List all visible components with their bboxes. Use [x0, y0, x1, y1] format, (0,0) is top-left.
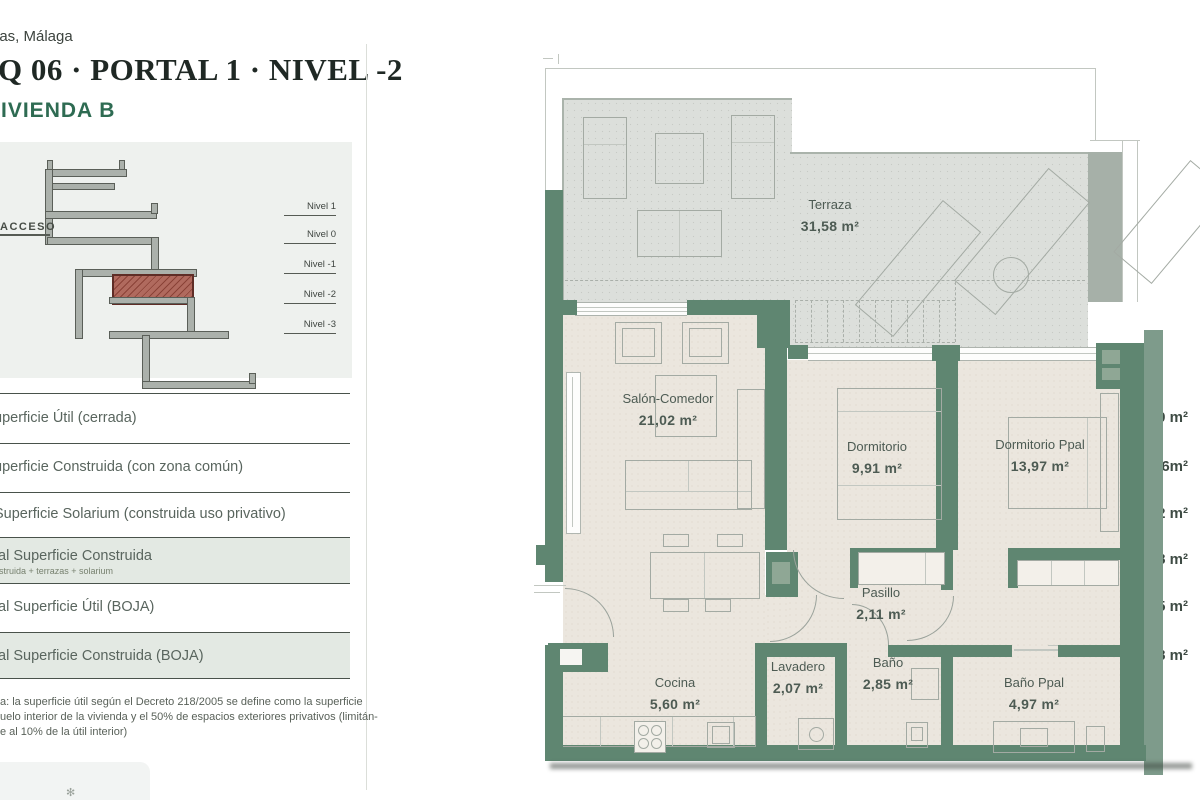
room-name: Lavadero: [771, 659, 825, 674]
note-line: a: la superficie útil según el Decreto 2…: [0, 696, 363, 708]
room-label-cocina: Cocina 5,60 m²: [630, 676, 720, 711]
table-row-label: tal Superficie Construida: [0, 548, 152, 564]
room-area: 5,60 m²: [630, 697, 720, 711]
section-bar: [250, 374, 255, 383]
room-area: 9,91 m²: [817, 461, 937, 475]
table-line: [0, 537, 350, 538]
table-line: [0, 583, 350, 584]
table-line: [0, 632, 350, 633]
curtain-track: [566, 372, 581, 534]
dining-chair: [717, 534, 743, 547]
access-line: [0, 234, 50, 236]
stairs-dashed: [939, 300, 940, 342]
stairs-dashed: [795, 300, 796, 342]
wall-endcap: [850, 548, 858, 588]
level-line: [284, 243, 336, 244]
room-name: Pasillo: [862, 585, 900, 600]
stairs-dashed: [907, 300, 908, 342]
neighbor-wall-band: [1144, 330, 1163, 775]
level-label: Nivel -1: [276, 259, 336, 270]
room-label-terraza: Terraza 31,58 m²: [770, 198, 890, 233]
bedroom-top-wall: [788, 345, 808, 359]
section-bar: [46, 212, 156, 218]
stairs-dashed: [795, 300, 955, 301]
dormppal-bottom-wall: [1008, 548, 1120, 560]
table-line: [0, 393, 350, 394]
room-label-pasillo: Pasillo 2,11 m²: [845, 586, 917, 621]
room-area: 2,85 m²: [848, 677, 928, 691]
bathppal-top-wall: [1058, 645, 1122, 657]
table-row-label: uperficie Construida (con zona común): [0, 459, 243, 475]
wall-inset: [1102, 368, 1122, 380]
dining-table: [650, 552, 760, 599]
closet-ppal: [1017, 560, 1119, 586]
location-text: jas, Málaga: [0, 28, 73, 45]
section-bar: [143, 336, 149, 386]
wall-shadow: [550, 763, 1192, 769]
sofa: [625, 460, 752, 510]
room-name: Dormitorio Ppal: [995, 437, 1085, 452]
toilet: [906, 722, 928, 748]
terrace-coffee-table: [637, 210, 722, 257]
bathppal-sink: [1020, 728, 1048, 747]
section-bar: [46, 170, 126, 176]
sliding-door-line: [1014, 649, 1058, 651]
stairs-dashed: [859, 300, 860, 342]
plan-tick: [558, 54, 559, 64]
terrace-table: [655, 133, 704, 184]
table-row-label: tal Superficie Construida (BOJA): [0, 648, 204, 664]
page-title: Q 06 · PORTAL 1 · NIVEL -2: [0, 52, 403, 88]
sliding-window: [575, 302, 687, 316]
table-line: [0, 443, 350, 444]
armchair: [615, 322, 662, 364]
kitchen-sink: [707, 722, 735, 748]
dining-chair: [663, 534, 689, 547]
room-label-lavadero: Lavadero 2,07 m²: [756, 660, 840, 695]
room-name: Cocina: [655, 675, 695, 690]
room-name: Dormitorio: [847, 439, 907, 454]
living-top-wall: [545, 300, 577, 315]
table-row-sublabel: nstruida + terrazas + solarium: [0, 566, 113, 576]
bath-divider-wall: [941, 657, 953, 745]
stairs-dashed: [955, 282, 956, 342]
plan-tick: [543, 58, 553, 59]
room-area: 2,11 m²: [845, 607, 917, 621]
room-area: 13,97 m²: [975, 459, 1105, 473]
room-label-bano-ppal: Baño Ppal 4,97 m²: [988, 676, 1080, 711]
room-label-salon: Salón-Comedor 21,02 m²: [598, 392, 738, 427]
plan-outline: [1090, 140, 1140, 141]
room-area: 21,02 m²: [598, 413, 738, 427]
entry-step: [534, 585, 566, 586]
table-line: [0, 678, 350, 679]
level-line: [284, 333, 336, 334]
sliding-door-tick: [1048, 645, 1058, 646]
terrace-side-wall: [1088, 152, 1122, 302]
room-label-bano: Baño 2,85 m²: [848, 656, 928, 691]
wall-inset: [1102, 350, 1122, 364]
compass-mark: ✻: [66, 786, 75, 799]
section-bar: [143, 382, 255, 388]
wall-pier: [536, 545, 546, 565]
exterior-wall-right: [1120, 345, 1144, 761]
level-line: [284, 303, 336, 304]
room-area: 2,07 m²: [756, 681, 840, 695]
unit-subtitle: VIVIENDA B: [0, 99, 115, 123]
terrace-side-table: [993, 257, 1029, 293]
section-bar: [152, 204, 157, 213]
section-bar: [110, 332, 228, 338]
note-line: e al 10% de la útil interior): [0, 726, 127, 738]
section-bar: [110, 298, 194, 303]
terrace-sofa: [731, 115, 775, 199]
entry-niche: [560, 649, 582, 665]
stairs-dashed: [827, 300, 828, 342]
stairs-dashed: [875, 300, 876, 342]
room-name: Baño Ppal: [1004, 675, 1064, 690]
stairs-dashed: [923, 300, 924, 342]
section-bar: [76, 270, 82, 338]
sun-lounger: [1113, 160, 1200, 284]
table-line: [0, 492, 350, 493]
plan-outline: [545, 68, 1095, 69]
level-line: [284, 215, 336, 216]
vertical-divider: [366, 44, 367, 790]
level-label: Nivel 1: [276, 201, 336, 212]
room-name: Terraza: [808, 197, 851, 212]
living-partition-wall: [765, 315, 787, 550]
room-area: 4,97 m²: [988, 697, 1080, 711]
note-line: uelo interior de la vivienda y el 50% de…: [0, 711, 378, 723]
living-top-wall: [687, 300, 765, 315]
dining-chair: [663, 599, 689, 612]
bedroom-window: [960, 347, 1100, 361]
terrace-sofa: [583, 117, 627, 199]
room-label-dormitorio: Dormitorio 9,91 m²: [817, 440, 937, 475]
level-label: Nivel -3: [276, 319, 336, 330]
stairs-dashed: [891, 300, 892, 342]
stove: [634, 721, 666, 753]
exterior-wall-left: [545, 190, 563, 582]
armchair: [682, 322, 729, 364]
toilet: [1086, 726, 1105, 752]
table-row-label: tal Superficie Útil (BOJA): [0, 599, 154, 615]
section-bar: [48, 238, 158, 244]
level-label: Nivel 0: [276, 229, 336, 240]
stairs-dashed: [795, 342, 955, 343]
table-row-label: uperficie Útil (cerrada): [0, 410, 137, 426]
plan-outline: [545, 68, 546, 190]
bedroom-top-wall: [932, 345, 960, 361]
stairs-dashed: [811, 300, 812, 342]
plan-outline: [1095, 68, 1096, 140]
level-line: [284, 273, 336, 274]
bedroom-window: [808, 347, 932, 361]
table-row-label: Superficie Solarium (construida uso priv…: [0, 506, 286, 522]
dining-chair: [705, 599, 731, 612]
room-name: Baño: [873, 655, 903, 670]
closet: [858, 552, 945, 585]
washer: [798, 718, 834, 750]
entry-step: [534, 592, 560, 593]
access-label: ACCESO: [0, 221, 56, 233]
section-bar: [52, 184, 114, 189]
plan-outline: [1122, 140, 1123, 302]
room-label-dormitorio-ppal: Dormitorio Ppal 13,97 m²: [975, 438, 1105, 473]
room-area: 31,58 m²: [770, 219, 890, 233]
sofa-chaise: [737, 389, 765, 509]
wall-inset: [772, 562, 790, 584]
level-label: Nivel -2: [276, 289, 336, 300]
stairs-dashed: [843, 300, 844, 342]
lavadero-top-wall: [755, 643, 847, 657]
room-name: Salón-Comedor: [622, 391, 713, 406]
